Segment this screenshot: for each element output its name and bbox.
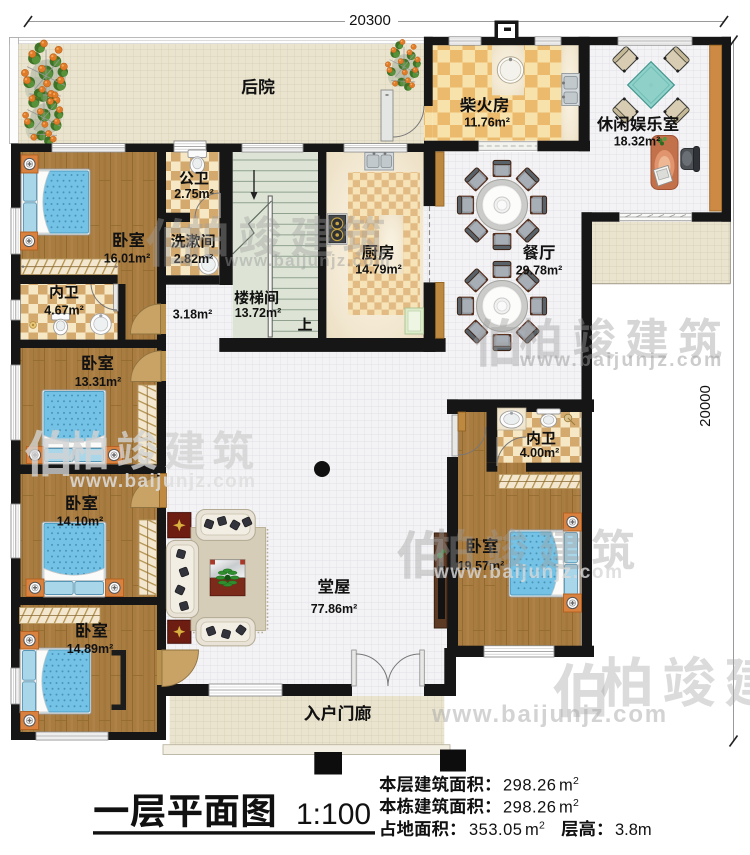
svg-text:www.baijunjz.com: www.baijunjz.com — [224, 251, 391, 270]
svg-text:14.10m²: 14.10m² — [57, 515, 104, 529]
svg-text:13.31m²: 13.31m² — [75, 375, 122, 389]
svg-text:4.00m²: 4.00m² — [520, 446, 560, 460]
svg-text:www.baijunjz.com: www.baijunjz.com — [69, 471, 256, 492]
svg-text:2: 2 — [539, 820, 545, 832]
svg-text:14.89m²: 14.89m² — [67, 642, 114, 656]
svg-text:20300: 20300 — [349, 12, 391, 29]
svg-text:29.78m²: 29.78m² — [516, 264, 563, 278]
svg-text:3.18m²: 3.18m² — [173, 308, 213, 322]
svg-text:13.72m²: 13.72m² — [235, 306, 282, 320]
svg-text:2: 2 — [573, 797, 579, 809]
svg-text:11.76m²: 11.76m² — [464, 116, 510, 130]
svg-text:353.05: 353.05 — [469, 821, 522, 839]
svg-text:16.01m²: 16.01m² — [104, 252, 151, 266]
svg-text:298.26: 298.26 — [503, 777, 556, 795]
svg-text:18.32m²: 18.32m² — [614, 135, 661, 149]
svg-text:1:100: 1:100 — [296, 798, 371, 831]
svg-text:2.75m²: 2.75m² — [174, 187, 214, 201]
svg-text:www.baijunjz.com: www.baijunjz.com — [431, 701, 668, 728]
svg-text:3.8m: 3.8m — [615, 821, 652, 839]
svg-text:m: m — [525, 821, 539, 839]
svg-text:4.67m²: 4.67m² — [44, 304, 84, 318]
svg-text:m: m — [559, 799, 573, 817]
svg-text:www.baijunjz.com: www.baijunjz.com — [519, 349, 724, 371]
svg-text:20000: 20000 — [697, 385, 714, 427]
svg-text:www.baijunjz.com: www.baijunjz.com — [433, 562, 624, 583]
svg-text:77.86m²: 77.86m² — [311, 602, 358, 616]
svg-text:2: 2 — [573, 775, 579, 787]
svg-text:m: m — [559, 777, 573, 795]
svg-text:298.26: 298.26 — [503, 799, 556, 817]
